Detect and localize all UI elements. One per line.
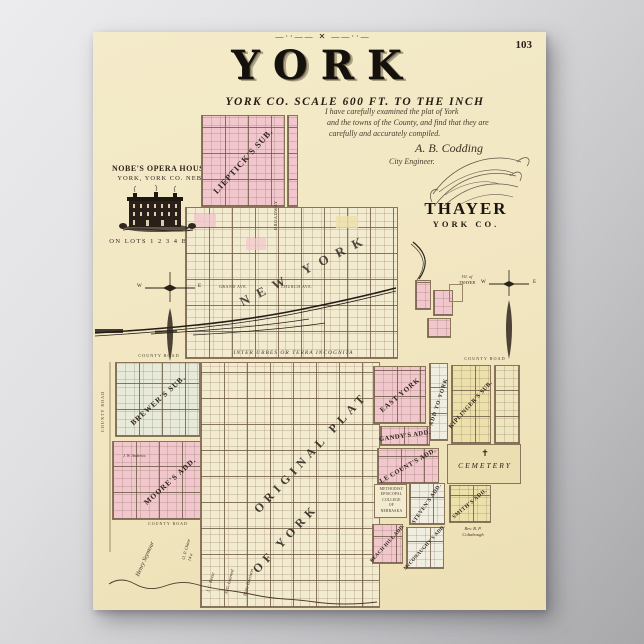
new-york-pink-parcel: [246, 238, 266, 250]
label-lecounts-add: LE COUNT'S ADD.: [379, 447, 438, 485]
plat-block-liepticks-strip: [287, 115, 298, 207]
label-methodist-college: METHODIST EPISCOPAL COLLEGE OF NEBRASKA: [375, 487, 408, 514]
label-church-ave: CHURCH AVE.: [281, 285, 313, 289]
header-ornament: —··—— ✕ ——··—: [233, 33, 413, 42]
compass-rose-icon-2: [489, 270, 529, 296]
label-andrews: J. W. Andrews: [123, 454, 146, 458]
certification-line3: carefully and accurately compiled.: [329, 130, 440, 139]
plat-block-mcconaughy-add: McCONAUGHY'S ADD.: [406, 527, 444, 569]
engineer-role: City Engineer.: [389, 158, 435, 167]
cemetery-cross-icon: ✝: [448, 449, 522, 459]
new-york-yellow-parcel: [336, 216, 358, 228]
label-smiths-add: SMITH'S ADD.: [451, 488, 488, 520]
certification-line1: I have carefully examined the plat of Yo…: [325, 108, 458, 117]
label-liepticks-sub: LIEPTICK'S SUB.: [211, 126, 275, 195]
label-county-road-left: COUNTY ROAD: [101, 391, 106, 432]
plat-block-liepticks-sub: LIEPTICK'S SUB.: [201, 115, 285, 207]
label-grand-ave: GRAND AVE.: [219, 285, 248, 289]
label-east-york: EAST YORK: [378, 376, 421, 414]
label-coltabough: Rev. B. P. Coltabough: [448, 526, 498, 539]
label-county-road-top: COUNTY ROAD: [119, 354, 199, 359]
plat-block-brewers-sub: BREWER'S SUB.: [115, 362, 200, 437]
compass-east-label: E: [198, 284, 201, 290]
thayer-title: THAYER: [411, 200, 521, 219]
thayer-plat-block: [427, 318, 451, 338]
plat-block-smiths-add: SMITH'S ADD.: [449, 485, 491, 523]
label-brewers-sub: BREWER'S SUB.: [128, 372, 187, 426]
certification-line2: and the towns of the County, and find th…: [327, 119, 489, 128]
plat-block-add-to-york: ADD TO YORK: [429, 363, 448, 441]
page-number: 103: [516, 39, 533, 51]
plat-block-beach-hill-add: BEACH HILL ADD.: [372, 524, 403, 564]
label-henry-seymour: Henry Seymour: [135, 541, 156, 578]
railroad-line-thayer: [411, 242, 425, 280]
plat-block-lecounts-add: LE COUNT'S ADD.: [377, 448, 439, 484]
map-poster: 103 —··—— ✕ ——··— YORK YORK CO. SCALE 60…: [93, 32, 546, 610]
label-county-road-bottom: COUNTY ROAD: [123, 522, 213, 526]
thayer-plat-block: [415, 280, 431, 310]
label-kiplingers-sub: KIPLINGER'S SUB.: [448, 379, 494, 429]
poster-mockup-background: 103 —··—— ✕ ——··— YORK YORK CO. SCALE 60…: [0, 0, 644, 644]
label-county-road-right: COUNTY ROAD: [445, 357, 525, 362]
label-beach-hill-add: BEACH HILL ADD.: [369, 524, 405, 564]
plat-block-stevens-add: STEVEN'S ADD.: [409, 483, 445, 525]
label-mcconaughy-add: McCONAUGHY'S ADD.: [403, 524, 446, 571]
compass2-west-label: W: [481, 280, 486, 286]
label-moores-add: MOORE'S ADD.: [142, 455, 198, 507]
plat-block-right-strip: [494, 365, 520, 444]
plat-block-cemetery: ✝ CEMETERY: [447, 444, 521, 484]
thayer-plat-outline-block: [449, 284, 463, 302]
compass2-east-label: E: [533, 280, 536, 286]
map-title: YORK: [153, 44, 493, 88]
feather-ornament-icon-2: [506, 300, 512, 359]
label-gandys-add: GANDY'S ADD.: [379, 429, 432, 443]
label-op-chase: O. P. Chase 14 a: [181, 538, 199, 562]
signature-flourish-ornament-icon: [433, 158, 529, 195]
label-broadway-street: BROADWAY: [274, 200, 279, 230]
plat-block-college: METHODIST EPISCOPAL COLLEGE OF NEBRASKA: [374, 484, 407, 518]
label-stevens-add: STEVEN'S ADD.: [411, 483, 443, 525]
plat-block-kiplingers-sub: KIPLINGER'S SUB.: [451, 365, 491, 444]
new-york-pink-parcel: [194, 214, 216, 227]
engineer-signature: A. B. Codding: [415, 142, 483, 155]
label-add-to-york: ADD TO YORK: [428, 377, 449, 426]
plat-block-gandys-add: GANDY'S ADD.: [380, 426, 430, 446]
compass-west-label: W: [137, 284, 142, 290]
label-inter-urbes: INTER URBES OR TERRA INCOGNITA: [211, 350, 376, 356]
plat-block-east-york: EAST YORK: [373, 366, 426, 424]
label-cemetery: CEMETERY: [448, 462, 522, 470]
thayer-subtitle: YORK CO.: [411, 220, 521, 229]
